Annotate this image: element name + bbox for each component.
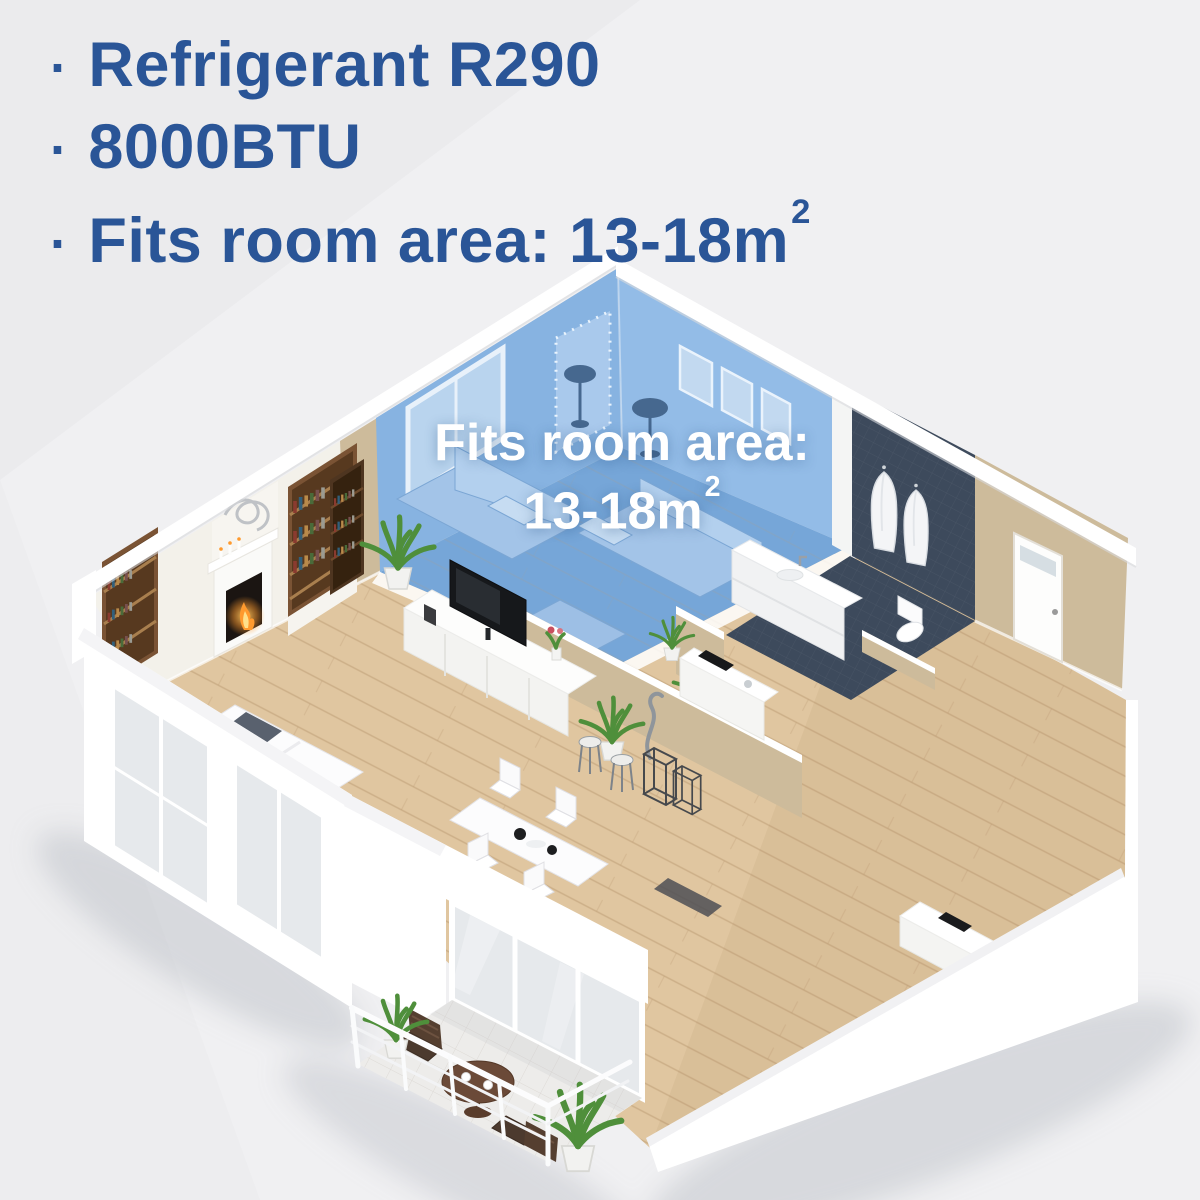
room-area-label-line2: 13-18m2 [322,472,922,540]
bullet-dot: · [50,112,68,190]
product-specs: · Refrigerant R290 · 8000BTU · Fits room… [50,26,811,284]
entry-door [1014,533,1062,662]
superscript: 2 [791,193,811,231]
room-area-label-line1: Fits room area: [322,414,922,472]
spec-room-area: · Fits room area: 13-18m2 [50,190,811,284]
spec-btu: · 8000BTU [50,108,811,190]
bullet-dot: · [50,30,68,108]
product-infographic: · Refrigerant R290 · 8000BTU · Fits room… [0,0,1200,1200]
spec-text: Refrigerant R290 [88,26,600,104]
superscript: 2 [705,471,721,503]
spec-text: Fits room area: 13-18m2 [88,190,811,280]
spec-refrigerant: · Refrigerant R290 [50,26,811,108]
bullet-dot: · [50,206,68,284]
spec-text: 8000BTU [88,108,361,186]
room-area-label: Fits room area: 13-18m2 [322,414,922,540]
